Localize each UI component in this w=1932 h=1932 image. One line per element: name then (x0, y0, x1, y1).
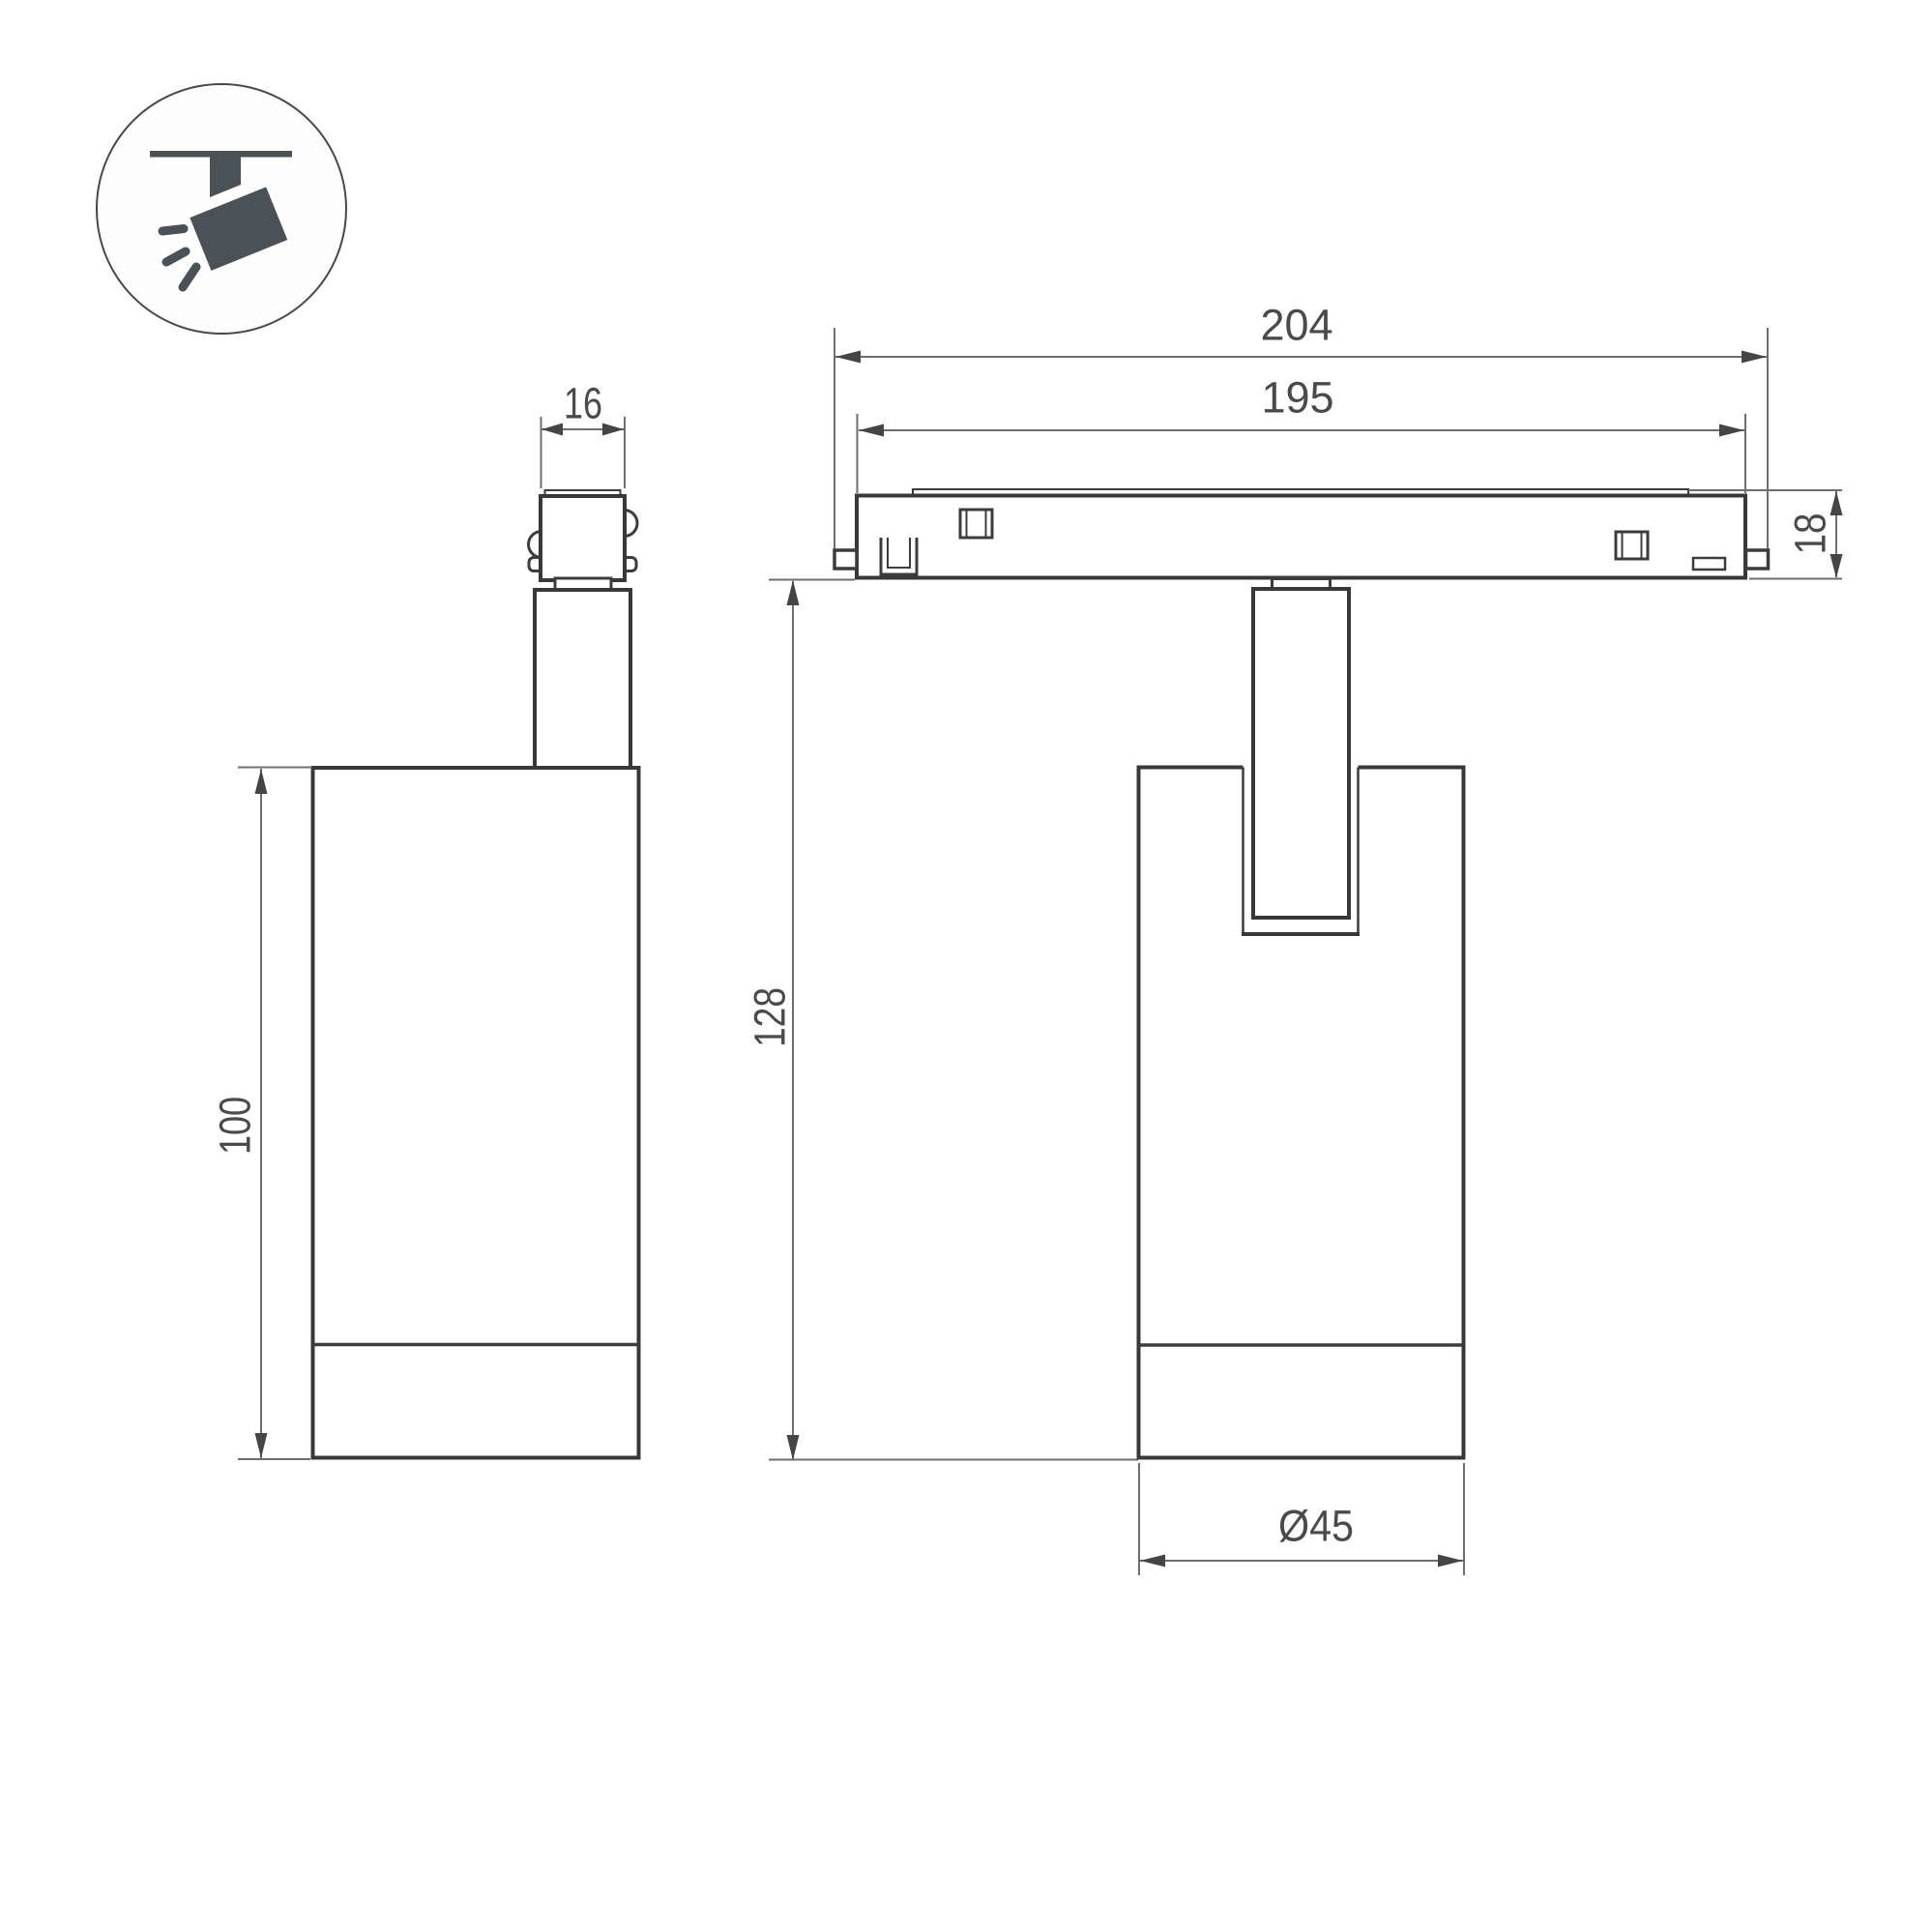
svg-text:195: 195 (1261, 373, 1333, 423)
svg-text:128: 128 (746, 987, 795, 1047)
svg-text:204: 204 (1260, 301, 1332, 350)
svg-text:16: 16 (564, 379, 602, 428)
svg-text:100: 100 (211, 1097, 260, 1155)
svg-text:Ø45: Ø45 (1278, 1502, 1354, 1551)
svg-text:18: 18 (1786, 513, 1835, 555)
